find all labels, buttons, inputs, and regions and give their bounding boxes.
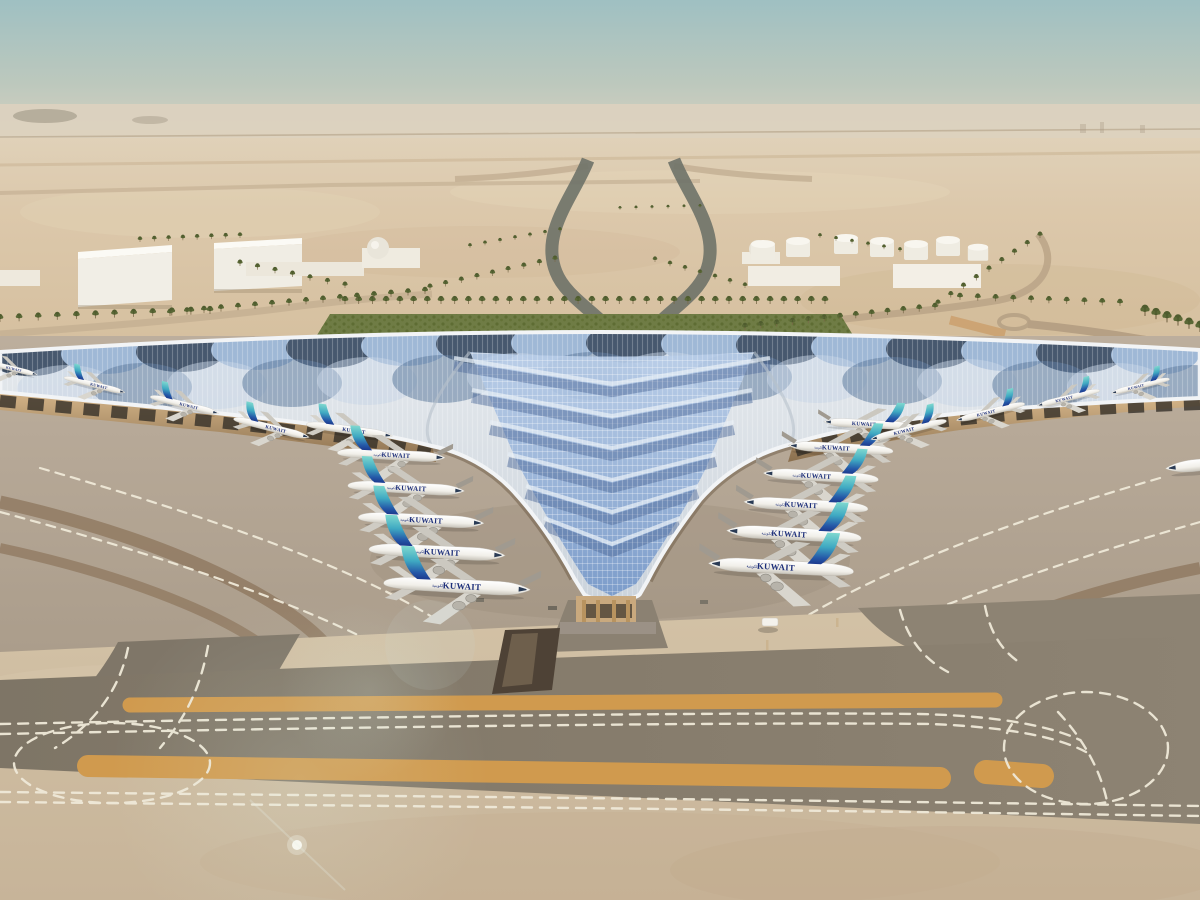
entrance-canopy [560, 622, 656, 634]
low-building [246, 262, 364, 276]
flare-disc [385, 600, 475, 690]
background-desert [0, 104, 1200, 360]
storage-tank [751, 240, 775, 260]
storage-tank [904, 240, 928, 260]
aircraft-title: KUWAIT [771, 529, 807, 540]
aircraft-title: KUWAIT [822, 444, 851, 452]
aircraft-title: KUWAIT [409, 515, 443, 526]
aircraft-title: KUWAIT [395, 484, 426, 494]
ground-equipment [700, 600, 708, 604]
aircraft-title: KUWAIT [757, 561, 795, 573]
storage-tank [834, 234, 858, 254]
aircraft-title: KUWAIT [784, 500, 817, 511]
entrance-column [626, 600, 630, 622]
aircraft-arabic-title: الكويتية [373, 453, 383, 457]
aircraft-arabic-title: الكويتية [775, 502, 786, 507]
entrance-column [612, 600, 616, 622]
white-building [893, 264, 981, 288]
white-building [0, 270, 40, 286]
aircraft-arabic-title: الكويتية [792, 473, 802, 477]
aircraft-title: KUWAIT [424, 547, 461, 558]
storage-tank [936, 236, 960, 256]
aircraft-title: KUWAIT [443, 580, 482, 592]
entrance-column [596, 600, 600, 622]
airport-aerial-rendering: KUWAIT KUWAIT KUWAIT KUWAIT KUWAIT KUWAI… [0, 0, 1200, 900]
marker-post [836, 618, 839, 627]
ground-equipment [548, 606, 557, 610]
distant-structures [13, 109, 77, 123]
aircraft-arabic-title: الكويتية [432, 583, 445, 589]
distant-structures [132, 116, 168, 124]
aircraft-arabic-title: الكويتية [746, 563, 758, 569]
warehouse-1 [78, 245, 172, 309]
storage-tank [968, 244, 988, 261]
marker-post [766, 640, 769, 650]
aircraft-arabic-title: الكويتية [814, 445, 823, 449]
entrance-column [582, 600, 586, 622]
aircraft-arabic-title: الكويتية [400, 518, 411, 523]
aircraft-arabic-title: الكويتية [387, 486, 397, 491]
white-building [748, 266, 840, 286]
sand-patch [20, 186, 380, 238]
entrance-glazing [584, 604, 632, 618]
aircraft-arabic-title: الكويتية [761, 531, 772, 536]
storage-tank [870, 237, 894, 257]
storage-tank [786, 237, 810, 257]
